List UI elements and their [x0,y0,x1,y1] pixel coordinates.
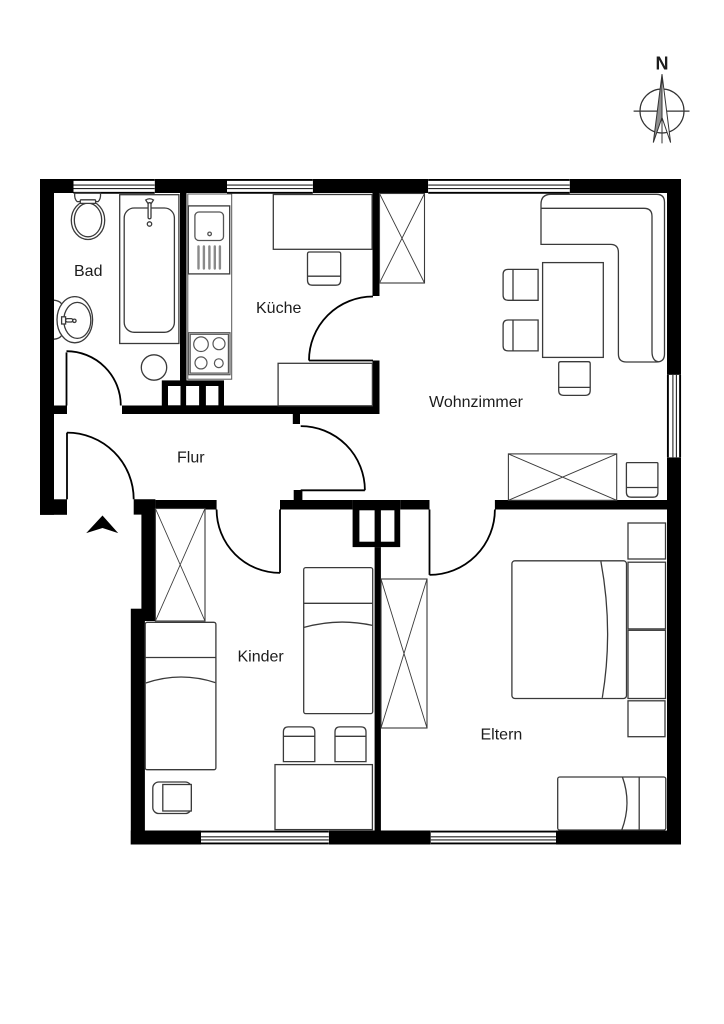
svg-text:N: N [656,54,669,74]
svg-text:Flur: Flur [177,450,205,467]
svg-text:Kinder: Kinder [238,649,285,666]
svg-text:Wohnzimmer: Wohnzimmer [429,394,524,411]
svg-text:Bad: Bad [74,263,102,280]
svg-text:Küche: Küche [256,300,301,317]
svg-text:Eltern: Eltern [481,727,523,744]
